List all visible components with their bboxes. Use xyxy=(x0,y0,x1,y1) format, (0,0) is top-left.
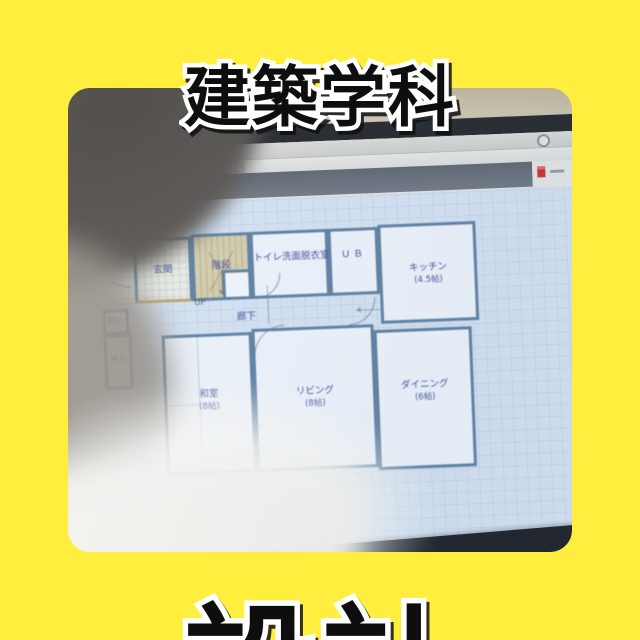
room-label: 玄関 xyxy=(153,264,172,276)
poster-bottom-title: 設計 xyxy=(0,562,640,640)
monitor-photo: 玄関 階段 トイレ洗面脱衣室 ＵＢ xyxy=(68,88,572,552)
corridor-annotation: 廊下 xyxy=(237,308,257,323)
toolbar-right-panel xyxy=(532,158,572,186)
panel-label-smudge xyxy=(550,169,564,173)
room-label: ＵＢ xyxy=(341,248,366,260)
poster-top-title: 建築学科 xyxy=(0,44,640,140)
room-label: キッチン xyxy=(409,261,447,274)
stairs-up-annotation: UP xyxy=(194,298,206,308)
poster: 玄関 階段 トイレ洗面脱衣室 ＵＢ xyxy=(0,0,640,640)
overexposed-desk-area xyxy=(68,468,358,552)
door-swing-arc xyxy=(348,297,376,325)
alert-icon xyxy=(537,166,545,177)
room-unit-bath: ＵＢ xyxy=(327,227,380,296)
room-size: (4.5帖) xyxy=(414,275,443,286)
room-kitchen: キッチン (4.5帖) xyxy=(377,221,479,324)
room-understair-closet xyxy=(222,269,252,300)
room-label: トイレ洗面脱衣室 xyxy=(253,250,329,264)
